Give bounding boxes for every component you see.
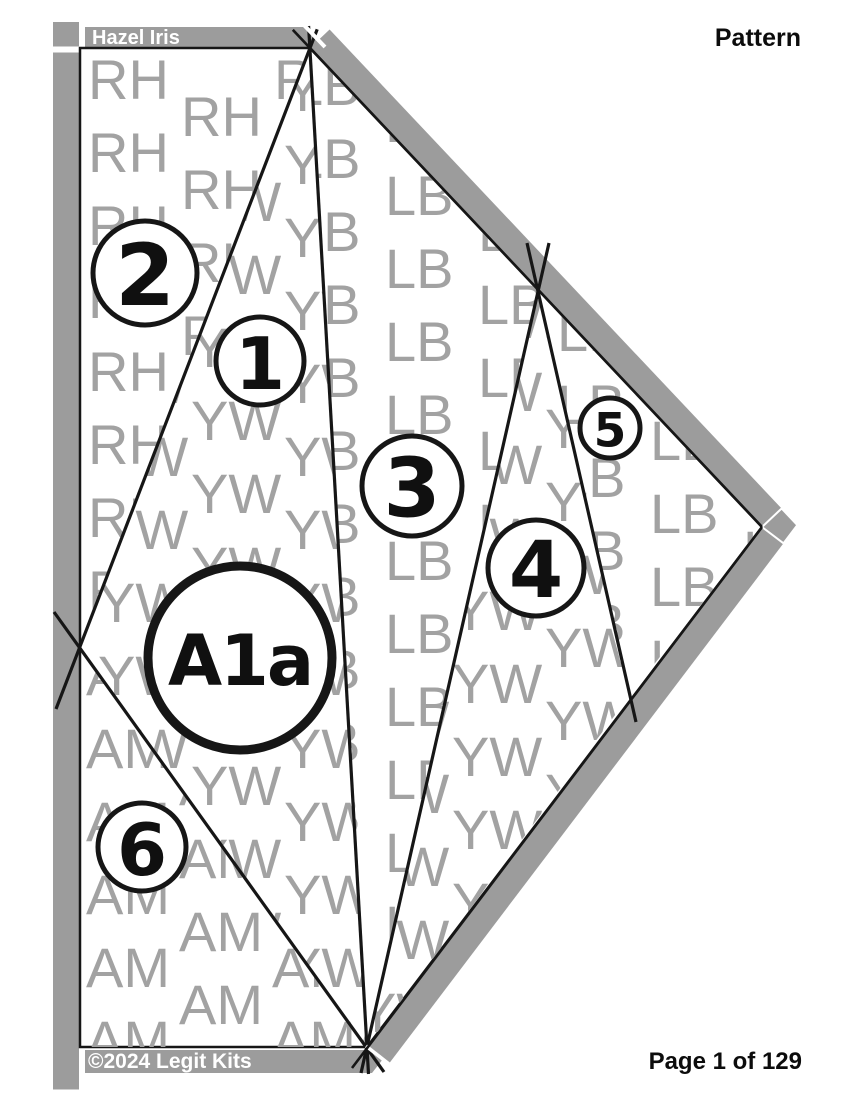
- watermark-text: YW: [452, 1090, 542, 1100]
- watermark-text: LB: [571, 164, 640, 227]
- watermark-text: LB: [743, 884, 812, 947]
- watermark-text: LB: [757, 91, 826, 154]
- watermark-text: YW: [638, 798, 728, 861]
- watermark-text: AM: [551, 1046, 635, 1100]
- watermark-text: YW: [545, 178, 635, 241]
- watermark-text: YW: [638, 944, 728, 1007]
- pattern-page: YWYWYWYWYWYWYWYWYWYWYWYWYWYWYWYWYWYWYWYW…: [0, 0, 850, 1100]
- watermark-text: LB: [464, 44, 533, 107]
- watermark-text: YW: [731, 835, 821, 898]
- piece-label-badge: A1a: [148, 566, 332, 750]
- watermark-text: YW: [749, 754, 839, 817]
- watermark-text: YW: [452, 68, 542, 131]
- page-indicator: Page 1 of 129: [649, 1048, 802, 1076]
- left-bar-top-segment: [53, 22, 79, 47]
- watermark-text: YW: [749, 97, 839, 160]
- watermark-text: YW: [731, 689, 821, 752]
- watermark-text: RH: [646, 778, 727, 841]
- watermark-text: RH: [646, 705, 727, 768]
- watermark-text: LB: [743, 738, 812, 801]
- watermark-text: RH: [88, 340, 169, 403]
- watermark-text: YW: [80, 1090, 170, 1100]
- watermark-text: AM: [737, 243, 821, 306]
- watermark-text: RH: [460, 48, 541, 111]
- watermark-text: LB: [478, 1076, 547, 1100]
- watermark-text: AM: [644, 1082, 728, 1100]
- watermark-text: LB: [664, 930, 733, 993]
- watermark-text: AM: [551, 900, 635, 963]
- watermark-text: LB: [650, 701, 719, 764]
- watermark-text: LB: [743, 154, 812, 217]
- watermark-text: AM: [644, 936, 728, 999]
- watermark-text: RH: [739, 377, 820, 440]
- watermark-text: YW: [656, 936, 746, 999]
- watermark-text: AM: [86, 936, 170, 999]
- watermark-text: AM: [644, 790, 728, 853]
- watermark-text: RH: [646, 121, 727, 184]
- watermark-text: YW: [638, 871, 728, 934]
- watermark-text: RH: [646, 851, 727, 914]
- watermark-text: AM: [737, 973, 821, 1036]
- watermark-text: YW: [470, 60, 560, 123]
- watermark-text: YW: [749, 900, 839, 963]
- watermark-text: YW: [638, 1090, 728, 1100]
- watermark-text: LB: [650, 117, 719, 180]
- watermark-text: LB: [385, 237, 454, 300]
- badge-number: 3: [383, 442, 440, 537]
- watermark-text: YW: [563, 170, 653, 233]
- left-bar: [53, 53, 79, 1090]
- watermark-text: RH: [553, 888, 634, 951]
- watermark-text: RH: [553, 1034, 634, 1097]
- watermark-text: LB: [385, 529, 454, 592]
- watermark-text: LB: [743, 592, 812, 655]
- watermark-text: RH: [739, 304, 820, 367]
- watermark-text: LB: [757, 748, 826, 811]
- watermark-text: RH: [88, 121, 169, 184]
- watermark-text: YW: [545, 835, 635, 898]
- watermark-text: LB: [650, 190, 719, 253]
- watermark-text: AM: [737, 681, 821, 744]
- watermark-text: AM: [644, 206, 728, 269]
- watermark-text: YW: [656, 717, 746, 780]
- watermark-text: YW: [545, 981, 635, 1044]
- watermark-text: YW: [656, 279, 746, 342]
- watermark-text: LB: [743, 665, 812, 728]
- watermark-text: YW: [731, 397, 821, 460]
- watermark-text: YW: [638, 725, 728, 788]
- watermark-text: YW: [98, 1082, 188, 1100]
- watermark-text: LB: [557, 81, 626, 144]
- watermark-text: AM: [551, 170, 635, 233]
- watermark-text: RH: [181, 85, 262, 148]
- watermark-text: RH: [88, 1070, 169, 1100]
- watermark-text: LB: [571, 91, 640, 154]
- watermark-text: YW: [470, 133, 560, 196]
- watermark-text: YW: [266, 1090, 356, 1100]
- watermark-text: RH: [460, 121, 541, 184]
- watermark-text: RH: [739, 158, 820, 221]
- watermark-text: RH: [460, 997, 541, 1060]
- watermark-text: LB: [571, 967, 640, 1030]
- watermark-text: YW: [470, 936, 560, 999]
- watermark-text: YW: [638, 68, 728, 131]
- watermark-text: LB: [757, 383, 826, 446]
- watermark-text: YW: [749, 608, 839, 671]
- badge-number: 1: [235, 322, 285, 406]
- watermark-text: LB: [571, 1040, 640, 1100]
- watermark-text: YW: [749, 827, 839, 890]
- watermark-text: YW: [452, 725, 542, 788]
- section-badge-2: 2: [93, 221, 197, 326]
- watermark-text: LB: [757, 821, 826, 884]
- watermark-text: RH: [646, 267, 727, 330]
- watermark-text: YW: [563, 97, 653, 160]
- watermark-text: YW: [656, 133, 746, 196]
- watermark-text: LB: [757, 894, 826, 957]
- watermark-text: LB: [664, 1076, 733, 1100]
- watermark-text: AM: [737, 170, 821, 233]
- watermark-text: RH: [460, 1070, 541, 1100]
- watermark-text: LB: [743, 811, 812, 874]
- watermark-text: LB: [571, 237, 640, 300]
- watermark-text: YW: [656, 863, 746, 926]
- watermark-text: YW: [470, 1082, 560, 1100]
- copyright-label: ©2024 Legit Kits: [88, 1050, 252, 1073]
- watermark-text: YW: [731, 762, 821, 825]
- watermark-text: LB: [664, 54, 733, 117]
- watermark-text: LB: [478, 127, 547, 190]
- watermark-text: LB: [385, 310, 454, 373]
- pattern-canvas: YWYWYWYWYWYWYWYWYWYWYWYWYWYWYWYWYWYWYWYW…: [0, 0, 850, 1100]
- watermark-text: YW: [545, 908, 635, 971]
- watermark-text: RH: [739, 85, 820, 148]
- watermark-text: AM: [737, 608, 821, 671]
- watermark-text: LB: [743, 373, 812, 436]
- watermark-text: LB: [385, 602, 454, 665]
- watermark-text: AM: [551, 97, 635, 160]
- watermark-text: AM: [644, 863, 728, 926]
- watermark-text: YW: [749, 316, 839, 379]
- section-badge-1: 1: [216, 317, 304, 406]
- watermark-text: RH: [739, 231, 820, 294]
- watermark-text: YW: [638, 214, 728, 277]
- watermark-text: RH: [553, 961, 634, 1024]
- section-badge-4: 4: [488, 520, 584, 616]
- watermark-text: YW: [638, 287, 728, 350]
- badge-number: 4: [509, 526, 563, 616]
- watermark-text: AM: [179, 973, 263, 1036]
- watermark-text: RH: [739, 742, 820, 805]
- watermark-text: AM: [551, 973, 635, 1036]
- watermark-text: LB: [650, 774, 719, 837]
- watermark-text: YW: [749, 389, 839, 452]
- watermark-text: LB: [757, 675, 826, 738]
- watermark-text: RH: [739, 961, 820, 1024]
- watermark-text: YW: [731, 981, 821, 1044]
- watermark-text: LB: [743, 81, 812, 144]
- watermark-text: LB: [743, 957, 812, 1020]
- watermark-text: YW: [191, 754, 281, 817]
- watermark-text: YW: [545, 105, 635, 168]
- watermark-text: AM: [737, 900, 821, 963]
- watermark-text: LB: [757, 967, 826, 1030]
- watermark-text: YW: [191, 462, 281, 525]
- watermark-text: YW: [284, 1082, 374, 1100]
- sheet-type-label: Pattern: [715, 24, 801, 53]
- watermark-text: LB: [664, 200, 733, 263]
- watermark-text: YW: [656, 790, 746, 853]
- watermark-text: LB: [557, 227, 626, 290]
- section-badge-6: 6: [98, 803, 186, 892]
- badge-number: 5: [594, 404, 627, 459]
- watermark-text: YW: [731, 178, 821, 241]
- watermark-text: LB: [557, 154, 626, 217]
- badge-number: 2: [115, 226, 175, 326]
- watermark-text: AM: [458, 60, 542, 123]
- watermark-text: AM: [179, 900, 263, 963]
- watermark-text: LB: [478, 54, 547, 117]
- watermark-text: LB: [650, 920, 719, 983]
- watermark-text: AM: [551, 827, 635, 890]
- section-badge-5: 5: [580, 398, 640, 459]
- watermark-text: LB: [664, 784, 733, 847]
- watermark-text: YW: [731, 616, 821, 679]
- watermark-text: LB: [664, 857, 733, 920]
- watermark-text: LB: [557, 957, 626, 1020]
- watermark-text: LB: [292, 1076, 361, 1100]
- watermark-text: AM: [644, 60, 728, 123]
- watermark-text: YW: [749, 170, 839, 233]
- watermark-text: AM: [644, 133, 728, 196]
- watermark-text: YW: [563, 827, 653, 890]
- watermark-text: AM: [737, 389, 821, 452]
- watermark-text: LB: [571, 894, 640, 957]
- watermark-text: LB: [650, 847, 719, 910]
- badge-number: 6: [117, 808, 167, 892]
- watermark-text: RH: [739, 669, 820, 732]
- watermark-text: LB: [757, 602, 826, 665]
- watermark-text: LB: [743, 300, 812, 363]
- watermark-text: LB: [757, 237, 826, 300]
- watermark-text: AM: [644, 717, 728, 780]
- watermark-text: RH: [274, 1070, 355, 1100]
- watermark-text: YW: [563, 973, 653, 1036]
- watermark-text: AM: [737, 316, 821, 379]
- watermark-text: RH: [88, 48, 169, 111]
- watermark-text: LB: [464, 117, 533, 180]
- watermark-text: LB: [743, 227, 812, 290]
- watermark-text: YW: [656, 60, 746, 123]
- watermark-text: LB: [464, 993, 533, 1056]
- watermark-text: YW: [545, 1054, 635, 1100]
- watermark-text: YW: [638, 141, 728, 204]
- sheet-title: Hazel Iris: [92, 27, 180, 49]
- piece-label-text: A1a: [168, 620, 312, 702]
- watermark-text: RH: [646, 194, 727, 257]
- watermark-text: LB: [571, 821, 640, 884]
- watermark-text: RH: [739, 596, 820, 659]
- watermark-text: LB: [557, 884, 626, 947]
- watermark-text: RH: [646, 48, 727, 111]
- watermark-text: YW: [749, 243, 839, 306]
- watermark-text: YW: [749, 681, 839, 744]
- watermark-text: YW: [563, 1046, 653, 1100]
- watermark-text: LB: [464, 1066, 533, 1100]
- watermark-text: LB: [664, 127, 733, 190]
- watermark-text: AM: [737, 827, 821, 890]
- watermark-text: LB: [757, 164, 826, 227]
- watermark-text: AM: [644, 279, 728, 342]
- watermark-text: YW: [749, 973, 839, 1036]
- watermark-text: RH: [739, 888, 820, 951]
- watermark-text: RH: [553, 85, 634, 148]
- watermark-text: RH: [646, 924, 727, 987]
- watermark-text: LB: [478, 1003, 547, 1066]
- watermark-text: LB: [664, 273, 733, 336]
- section-badge-3: 3: [362, 436, 462, 537]
- watermark-text: YW: [656, 206, 746, 269]
- watermark-text: RH: [553, 158, 634, 221]
- watermark-text: LB: [650, 482, 719, 545]
- watermark-text: LB: [478, 930, 547, 993]
- watermark-text: AM: [737, 97, 821, 160]
- watermark-text: YW: [470, 1009, 560, 1072]
- watermark-text: RH: [739, 815, 820, 878]
- watermark-text: YW: [452, 652, 542, 715]
- watermark-text: YW: [563, 900, 653, 963]
- watermark-text: LB: [664, 711, 733, 774]
- watermark-text: LB: [557, 1030, 626, 1093]
- watermark-text: AM: [737, 754, 821, 817]
- watermark-text: AM: [458, 1009, 542, 1072]
- watermark-text: YW: [731, 105, 821, 168]
- watermark-text: LB: [106, 1076, 175, 1100]
- watermark-text: YW: [731, 908, 821, 971]
- watermark-text: LB: [650, 993, 719, 1056]
- watermark-text: YW: [731, 251, 821, 314]
- watermark-text: LB: [650, 263, 719, 326]
- watermark-text: AM: [86, 1082, 170, 1100]
- watermark-text: AM: [272, 1082, 356, 1100]
- watermark-text: YW: [731, 324, 821, 387]
- watermark-text: AM: [458, 1082, 542, 1100]
- watermark-text: LB: [650, 44, 719, 107]
- watermark-text: YW: [452, 1017, 542, 1080]
- watermark-text: YW: [656, 1082, 746, 1100]
- watermark-text: LB: [757, 310, 826, 373]
